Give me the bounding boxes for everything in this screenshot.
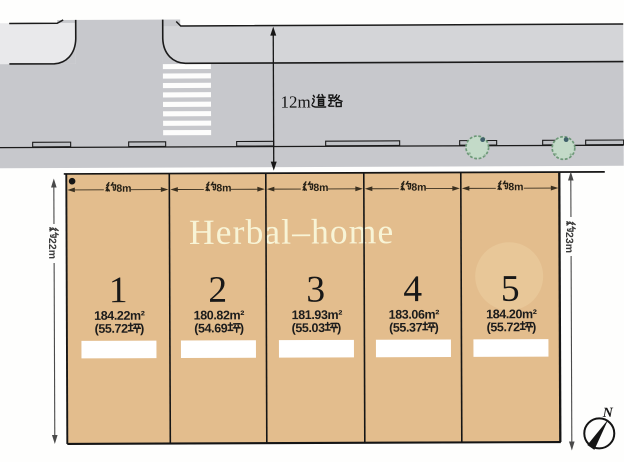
svg-text:5: 5 [501, 269, 520, 310]
svg-text:N: N [602, 406, 614, 421]
svg-text:4: 4 [403, 269, 422, 310]
svg-text:8m: 8m [508, 181, 523, 193]
svg-text:): ) [435, 321, 439, 335]
svg-text:184.22m²: 184.22m² [94, 309, 145, 323]
svg-text:180.82m²: 180.82m² [194, 308, 245, 322]
svg-text:8m: 8m [116, 183, 131, 195]
svg-text:): ) [140, 322, 144, 336]
svg-text:(54.69: (54.69 [194, 321, 228, 335]
svg-text:(55.72: (55.72 [95, 322, 129, 336]
svg-text:8m: 8m [216, 182, 231, 194]
svg-text:183.06m²: 183.06m² [389, 308, 440, 322]
svg-text:12m: 12m [280, 93, 310, 112]
svg-text:8m: 8m [411, 182, 426, 194]
svg-text:184.20m²: 184.20m² [486, 307, 537, 321]
svg-text:(55.03: (55.03 [292, 321, 326, 335]
svg-text:8m: 8m [313, 182, 328, 194]
svg-text:22m: 22m [46, 238, 58, 259]
svg-text:(55.37: (55.37 [389, 321, 423, 335]
svg-text:3: 3 [306, 269, 325, 310]
svg-text:): ) [337, 321, 341, 335]
svg-text:2: 2 [208, 270, 227, 311]
svg-text:1: 1 [109, 270, 128, 311]
svg-text:): ) [532, 320, 536, 334]
svg-text:23m: 23m [563, 232, 575, 253]
svg-text:181.93m²: 181.93m² [292, 308, 343, 322]
svg-text:): ) [240, 321, 244, 335]
svg-text:(55.72: (55.72 [487, 320, 521, 334]
